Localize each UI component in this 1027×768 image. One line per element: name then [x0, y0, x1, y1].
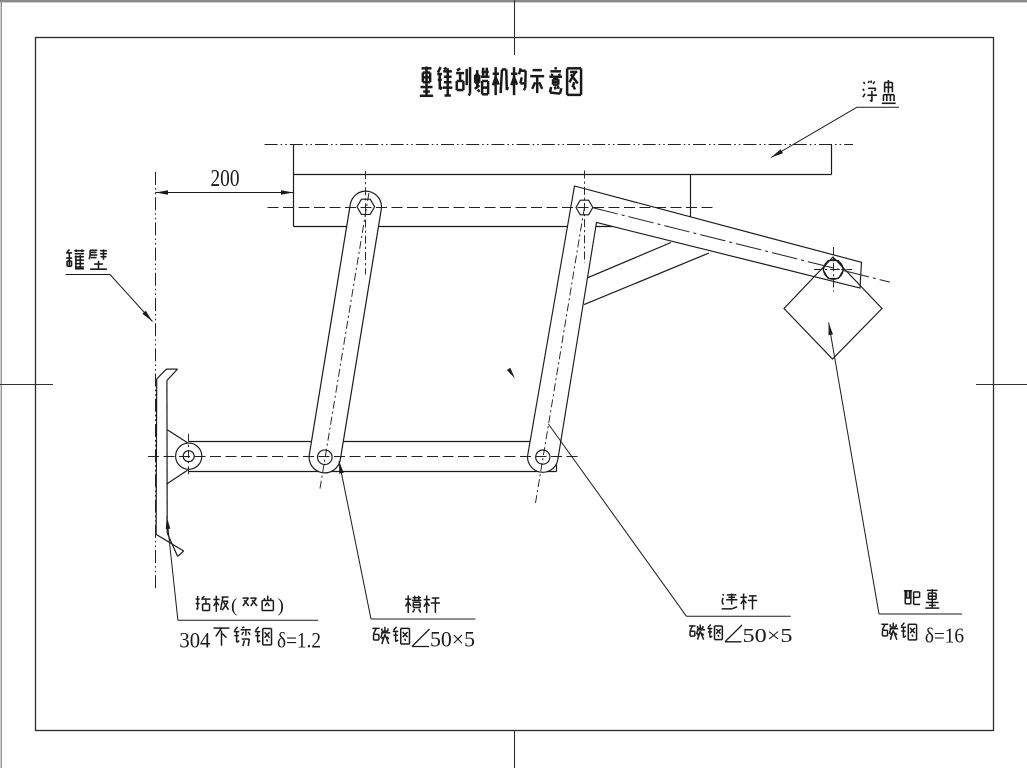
- svg-text:50×5: 50×5: [743, 625, 793, 647]
- svg-text:304: 304: [179, 628, 210, 653]
- svg-text:): ): [278, 596, 284, 617]
- svg-text:200: 200: [211, 166, 240, 192]
- svg-text:δ=16: δ=16: [920, 623, 964, 647]
- svg-text:δ=1.2: δ=1.2: [277, 628, 321, 653]
- svg-text:50×5: 50×5: [430, 627, 475, 652]
- svg-text:(: (: [231, 596, 237, 617]
